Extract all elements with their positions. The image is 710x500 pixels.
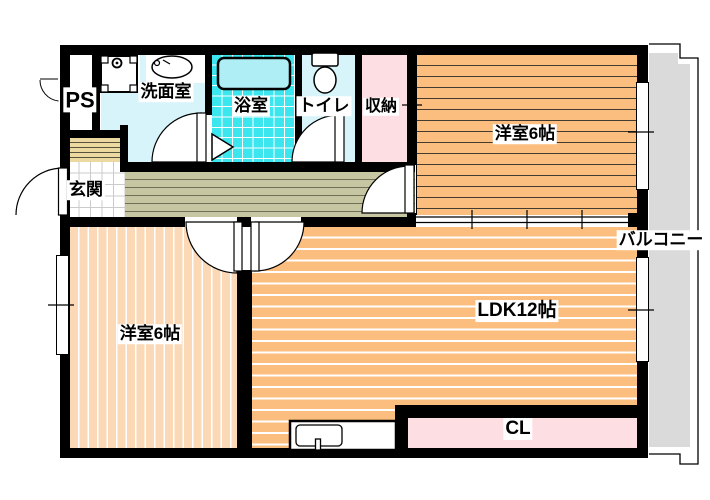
wall-ps-bottom [60, 130, 122, 138]
wall-closet-top [395, 405, 648, 418]
wall-bottom [60, 448, 648, 458]
closet-label: CL [503, 418, 532, 440]
window-sw [56, 255, 69, 355]
wall-toilet-storage [355, 45, 362, 162]
balcony-floor [649, 53, 690, 447]
wall-hall-top [120, 162, 415, 172]
bedroom-sw-label: 洋室6帖 [118, 324, 182, 344]
wall-washroom-bath [205, 45, 212, 115]
balcony-label: バルコニー [617, 230, 706, 250]
wall-rooms-top-c [301, 217, 415, 227]
wall-rooms-top-a [60, 217, 185, 227]
washroom-label: 洗面室 [139, 82, 194, 102]
toilet-label: トイレ [297, 96, 352, 116]
wall-storage-right [407, 45, 416, 165]
window-ne [636, 82, 649, 190]
bathroom-label: 浴室 [232, 96, 270, 116]
bedroom-ne-label: 洋室6帖 [493, 124, 557, 144]
wall-rooms-top-b [237, 217, 251, 227]
ps-label: PS [63, 87, 96, 112]
washbasin-counter [146, 55, 205, 83]
wall-top [60, 45, 648, 55]
ps-door [40, 79, 59, 101]
balcony-corner-notch [678, 53, 690, 64]
window-ldk [636, 257, 649, 362]
entrance-step [68, 138, 120, 162]
washer-pan-area [98, 55, 140, 91]
wall-sw-ldk [237, 270, 252, 448]
entrance-label: 玄関 [67, 180, 105, 200]
hallway-floor [125, 172, 415, 217]
storage-label: 収納 [363, 98, 399, 116]
wall-stub-right [628, 213, 648, 227]
floor-plan: PS 洗面室 浴室 トイレ 収納 洋室6帖 バルコニー 玄関 洋室6帖 LDK1… [0, 0, 710, 500]
ldk-label: LDK12帖 [475, 300, 558, 322]
